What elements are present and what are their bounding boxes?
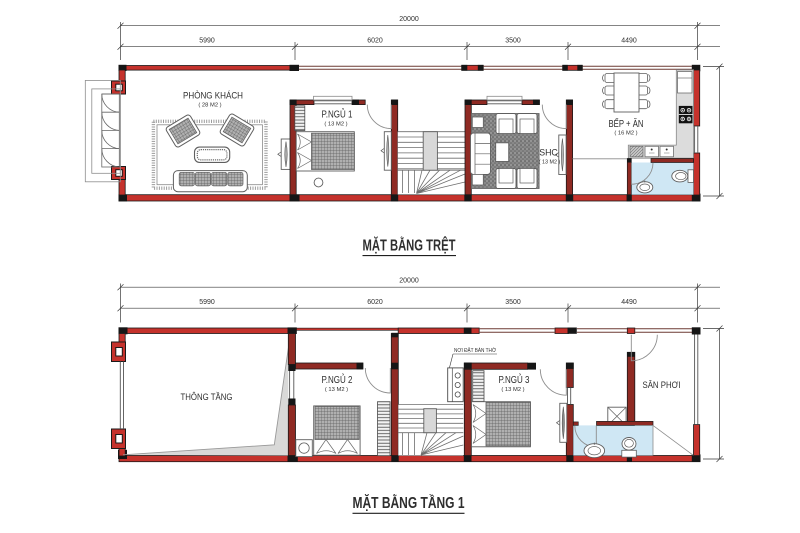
svg-text:BẾP + ĂN: BẾP + ĂN — [609, 117, 644, 130]
svg-text:( 13 M2 ): ( 13 M2 ) — [324, 122, 347, 128]
svg-text:P.NGỦ 1: P.NGỦ 1 — [322, 108, 353, 121]
svg-text:PHÒNG KHÁCH: PHÒNG KHÁCH — [183, 91, 243, 102]
svg-text:P.NGỦ 2: P.NGỦ 2 — [322, 373, 353, 386]
svg-text:MẶT BẰNG TẦNG 1: MẶT BẰNG TẦNG 1 — [353, 493, 465, 512]
svg-text:( 16 M2 ): ( 16 M2 ) — [614, 131, 637, 137]
svg-text:3500: 3500 — [505, 299, 521, 306]
svg-text:MẶT BẰNG TRỆT: MẶT BẰNG TRỆT — [363, 236, 456, 255]
svg-text:6020: 6020 — [367, 38, 383, 45]
svg-text:4490: 4490 — [621, 38, 637, 45]
svg-text:( 28 M2 ): ( 28 M2 ) — [198, 103, 221, 109]
svg-text:20000: 20000 — [399, 16, 419, 23]
svg-text:20000: 20000 — [399, 278, 419, 285]
svg-text:SÂN PHƠI: SÂN PHƠI — [643, 380, 681, 391]
svg-text:( 13 M2 ): ( 13 M2 ) — [325, 387, 348, 393]
svg-text:SHC: SHC — [539, 148, 558, 158]
svg-text:3500: 3500 — [505, 38, 521, 45]
svg-text:P.NGỦ 3: P.NGỦ 3 — [499, 373, 530, 386]
svg-text:( 13 M2 ): ( 13 M2 ) — [539, 160, 561, 166]
svg-text:5990: 5990 — [199, 299, 215, 306]
svg-text:NƠI ĐẶT BÀN THỜ: NƠI ĐẶT BÀN THỜ — [454, 347, 496, 354]
svg-text:6020: 6020 — [367, 299, 383, 306]
svg-text:THÔNG TẦNG: THÔNG TẦNG — [181, 392, 233, 403]
svg-text:( 13 M2 ): ( 13 M2 ) — [501, 387, 524, 393]
svg-text:5990: 5990 — [199, 38, 215, 45]
svg-text:4490: 4490 — [621, 299, 637, 306]
